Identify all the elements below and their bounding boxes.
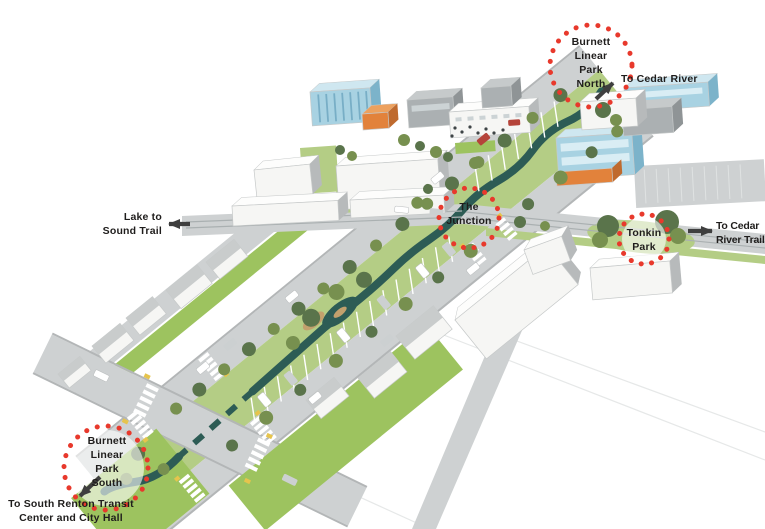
label-burnett-linear-park-north: Burnett Linear Park North xyxy=(572,35,611,91)
label-lake-to-sound-trail: Lake to Sound Trail xyxy=(58,210,162,238)
label-to-south-renton-transit: To South Renton Transit Center and City … xyxy=(0,497,142,525)
label-to-cedar-river-trail: To Cedar River Trail xyxy=(716,219,765,247)
label-the-junction: The Junction xyxy=(446,200,491,228)
building xyxy=(253,155,323,200)
label-to-cedar-river: To Cedar River xyxy=(621,72,698,86)
label-burnett-linear-park-south: Burnett Linear Park South xyxy=(88,434,127,490)
label-tonkin-park: Tonkin Park xyxy=(627,226,662,254)
burnett-linear-park-map: Burnett Linear Park North The Junction T… xyxy=(0,0,765,529)
building xyxy=(232,192,349,226)
